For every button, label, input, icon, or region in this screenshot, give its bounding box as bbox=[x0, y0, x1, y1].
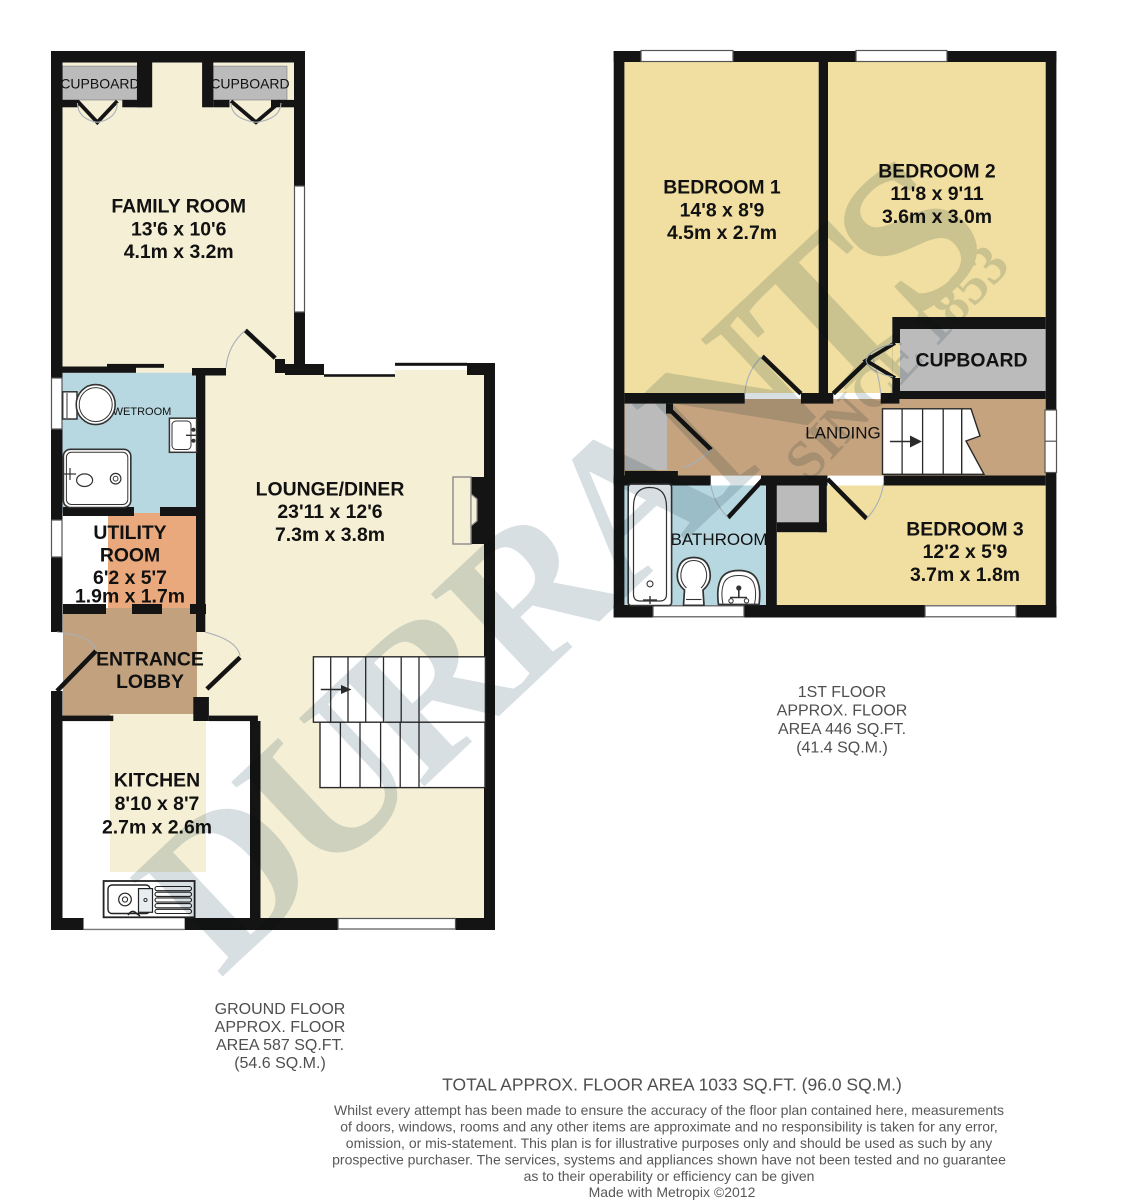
svg-text:LOUNGE/DINER: LOUNGE/DINER bbox=[256, 479, 405, 501]
svg-text:Made with Metropix ©2012: Made with Metropix ©2012 bbox=[589, 1184, 756, 1200]
svg-text:CUPBOARD: CUPBOARD bbox=[210, 76, 289, 92]
svg-text:13'6 x 10'6: 13'6 x 10'6 bbox=[131, 218, 227, 240]
svg-text:omission, or mis-statement. Th: omission, or mis-statement. This plan is… bbox=[346, 1135, 992, 1151]
svg-text:4.1m x 3.2m: 4.1m x 3.2m bbox=[124, 241, 234, 263]
svg-text:UTILITY: UTILITY bbox=[93, 522, 166, 544]
svg-text:ROOM: ROOM bbox=[100, 545, 160, 567]
svg-text:23'11 x 12'6: 23'11 x 12'6 bbox=[277, 501, 382, 523]
svg-text:ENTRANCE: ENTRANCE bbox=[96, 649, 204, 671]
svg-text:TOTAL APPROX. FLOOR AREA 1033: TOTAL APPROX. FLOOR AREA 1033 SQ.FT. (96… bbox=[442, 1075, 902, 1095]
svg-text:14'8 x 8'9: 14'8 x 8'9 bbox=[680, 199, 765, 221]
svg-text:APPROX. FLOOR: APPROX. FLOOR bbox=[777, 703, 908, 720]
svg-text:GROUND FLOOR: GROUND FLOOR bbox=[215, 1001, 346, 1018]
svg-text:APPROX. FLOOR: APPROX. FLOOR bbox=[215, 1019, 346, 1036]
svg-text:AREA 587 SQ.FT.: AREA 587 SQ.FT. bbox=[216, 1037, 344, 1054]
svg-text:LOBBY: LOBBY bbox=[116, 671, 184, 693]
svg-text:WETROOM: WETROOM bbox=[113, 406, 172, 418]
svg-text:AREA 446 SQ.FT.: AREA 446 SQ.FT. bbox=[778, 721, 906, 738]
svg-text:(54.6 SQ.M.): (54.6 SQ.M.) bbox=[234, 1055, 326, 1072]
svg-text:1ST FLOOR: 1ST FLOOR bbox=[798, 684, 887, 701]
svg-text:3.7m x 1.8m: 3.7m x 1.8m bbox=[910, 564, 1020, 586]
svg-text:Whilst every attempt has been: Whilst every attempt has been made to en… bbox=[334, 1102, 1004, 1118]
svg-text:BEDROOM 3: BEDROOM 3 bbox=[906, 519, 1024, 541]
svg-text:(41.4 SQ.M.): (41.4 SQ.M.) bbox=[796, 740, 888, 757]
svg-text:as to their operability or eff: as to their operability or efficiency ca… bbox=[524, 1168, 815, 1184]
svg-text:of doors, windows, rooms and a: of doors, windows, rooms and any other i… bbox=[340, 1119, 998, 1135]
svg-text:CUPBOARD: CUPBOARD bbox=[60, 76, 139, 92]
svg-text:FAMILY ROOM: FAMILY ROOM bbox=[111, 196, 246, 218]
svg-text:12'2 x 5'9: 12'2 x 5'9 bbox=[923, 541, 1008, 563]
svg-text:prospective purchaser. The ser: prospective purchaser. The services, sys… bbox=[332, 1152, 1006, 1168]
svg-text:BEDROOM 1: BEDROOM 1 bbox=[663, 177, 781, 199]
svg-text:7.3m x 3.8m: 7.3m x 3.8m bbox=[275, 524, 385, 546]
